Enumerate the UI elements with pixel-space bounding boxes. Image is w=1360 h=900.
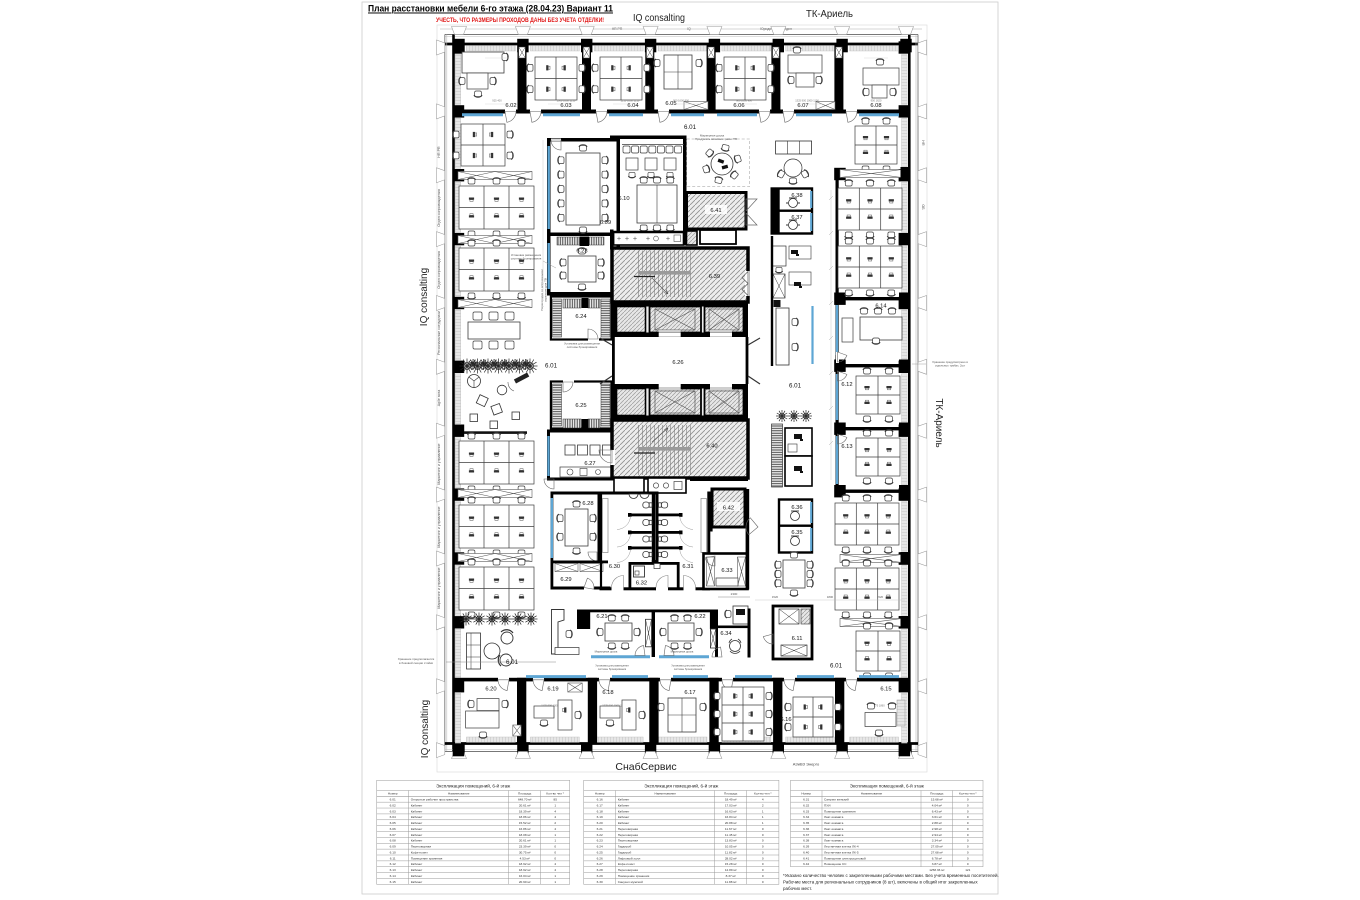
svg-text:6.24: 6.24 — [597, 845, 603, 849]
svg-text:1: 1 — [554, 833, 556, 837]
svg-text:0: 0 — [967, 862, 969, 866]
svg-text:6.16: 6.16 — [780, 717, 791, 723]
svg-text:Площадь: Площадь — [930, 792, 944, 796]
svg-text:2: 2 — [554, 821, 556, 825]
svg-text:6.27: 6.27 — [597, 862, 603, 866]
svg-text:0: 0 — [967, 833, 969, 837]
svg-text:1: 1 — [762, 809, 764, 813]
svg-text:6.07: 6.07 — [390, 833, 396, 837]
svg-text:15.68 м²: 15.68 м² — [931, 798, 943, 802]
svg-text:20.61 м²: 20.61 м² — [519, 839, 531, 843]
svg-text:15.52 м²: 15.52 м² — [519, 821, 531, 825]
svg-text:Кабинет: Кабинет — [618, 821, 630, 825]
svg-text:6.27: 6.27 — [584, 461, 595, 467]
svg-text:6.39: 6.39 — [803, 845, 809, 849]
svg-text:6.10: 6.10 — [618, 196, 629, 202]
svg-text:2.94 м²: 2.94 м² — [932, 833, 942, 837]
svg-text:4.53 м²: 4.53 м² — [520, 856, 530, 860]
svg-text:Экспликация помещений, 6-й эта: Экспликация помещений, 6-й этаж — [436, 782, 511, 788]
svg-text:6.01: 6.01 — [830, 663, 843, 670]
svg-text:16.84 м²: 16.84 м² — [725, 815, 737, 819]
svg-text:ПУИ: ПУИ — [824, 803, 830, 807]
svg-text:Санузел женский: Санузел женский — [824, 798, 849, 802]
svg-text:Переговорная: Переговорная — [618, 868, 639, 872]
svg-text:648.70 м²: 648.70 м² — [518, 798, 531, 802]
svg-text:18.86 м²: 18.86 м² — [519, 815, 531, 819]
svg-text:6.23: 6.23 — [597, 839, 603, 843]
svg-text:6.19: 6.19 — [597, 815, 603, 819]
svg-text:925 400: 925 400 — [492, 99, 502, 103]
svg-text:Региональные сотрудники: Региональные сотрудники — [437, 311, 441, 355]
svg-text:0: 0 — [967, 809, 969, 813]
svg-text:18.08 м²: 18.08 м² — [519, 833, 531, 837]
svg-text:0: 0 — [762, 862, 764, 866]
svg-text:Лакт-комната: Лакт-комната — [824, 833, 844, 837]
svg-text:Лестничная клетка ЛК-4: Лестничная клетка ЛК-4 — [824, 845, 859, 849]
svg-text:Экспликация помещений, 6-й эта: Экспликация помещений, 6-й этаж — [850, 782, 925, 788]
svg-text:6.12: 6.12 — [841, 382, 852, 388]
svg-text:0: 0 — [762, 845, 764, 849]
svg-text:2.88 м²: 2.88 м² — [932, 821, 942, 825]
svg-text:в боковой секции стойки: в боковой секции стойки — [399, 661, 433, 665]
svg-text:6.09: 6.09 — [390, 845, 396, 849]
svg-text:0: 0 — [762, 833, 764, 837]
svg-text:Маркетинг и управление: Маркетинг и управление — [437, 506, 441, 547]
svg-text:Кол-во чел *: Кол-во чел * — [546, 792, 564, 796]
svg-text:6.19: 6.19 — [547, 687, 558, 693]
svg-text:Помещение хранения: Помещение хранения — [618, 874, 650, 878]
svg-text:4: 4 — [554, 815, 556, 819]
svg-text:6.40: 6.40 — [803, 850, 809, 854]
svg-text:0: 0 — [762, 874, 764, 878]
svg-text:системы бронирования: системы бронирования — [567, 345, 598, 349]
svg-text:Лакт-комната: Лакт-комната — [824, 827, 844, 831]
svg-text:121: 121 — [965, 868, 970, 872]
svg-text:6.13: 6.13 — [390, 868, 396, 872]
svg-text:6.14: 6.14 — [390, 874, 396, 878]
svg-text:6.21: 6.21 — [597, 827, 603, 831]
svg-text:6.26: 6.26 — [672, 360, 683, 366]
svg-text:6.04: 6.04 — [390, 815, 396, 819]
svg-text:6.15: 6.15 — [880, 687, 891, 693]
svg-text:6.18: 6.18 — [602, 690, 613, 696]
svg-text:отдельных тумбах. 2шт: отдельных тумбах. 2шт — [935, 364, 966, 368]
svg-text:3.61 м²: 3.61 м² — [932, 815, 942, 819]
svg-text:системы бронирования: системы бронирования — [511, 257, 542, 261]
svg-text:Переговорная: Переговорная — [618, 839, 639, 843]
svg-text:Кабинет: Кабинет — [411, 862, 423, 866]
svg-text:6.33: 6.33 — [803, 809, 809, 813]
svg-text:6.15: 6.15 — [390, 880, 396, 884]
svg-text:Кофе-поинт: Кофе-поинт — [411, 850, 429, 854]
svg-text:4: 4 — [554, 868, 556, 872]
svg-text:ТК-Ариель: ТК-Ариель — [806, 9, 853, 20]
svg-text:6.17: 6.17 — [597, 803, 603, 807]
svg-text:Наименование: Наименование — [448, 792, 470, 796]
svg-text:Переговорная: Переговорная — [618, 833, 639, 837]
svg-text:8.37 м²: 8.37 м² — [726, 874, 736, 878]
svg-text:2.98 м²: 2.98 м² — [932, 827, 942, 831]
svg-text:6.25: 6.25 — [597, 850, 603, 854]
svg-text:6.01: 6.01 — [506, 659, 519, 666]
svg-text:Кабинет: Кабинет — [411, 880, 423, 884]
svg-text:4: 4 — [554, 862, 556, 866]
svg-text:17.03 м²: 17.03 м² — [725, 803, 737, 807]
svg-text:ОБ: ОБ — [921, 204, 925, 210]
svg-text:Санузел мужской: Санузел мужской — [618, 880, 643, 884]
svg-text:1: 1 — [554, 874, 556, 878]
svg-text:1520: 1520 — [772, 595, 779, 599]
svg-text:Наименование: Наименование — [654, 792, 676, 796]
svg-text:Открытые рабочие пространства: Открытые рабочие пространства — [411, 798, 459, 802]
svg-text:6.20: 6.20 — [597, 821, 603, 825]
svg-text:6.30: 6.30 — [609, 564, 620, 570]
svg-text:Кабинет: Кабинет — [411, 809, 423, 813]
svg-text:Маркерная доска: Маркерная доска — [671, 650, 694, 654]
svg-text:6.21: 6.21 — [596, 614, 607, 620]
svg-text:0: 0 — [762, 839, 764, 843]
svg-text:Номер: Номер — [801, 792, 811, 796]
svg-text:экранами для ТВ: экранами для ТВ — [544, 278, 548, 302]
svg-text:1: 1 — [762, 815, 764, 819]
svg-text:Номер: Номер — [595, 792, 605, 796]
svg-text:6.22: 6.22 — [694, 614, 705, 620]
svg-text:85: 85 — [553, 798, 557, 802]
svg-text:1: 1 — [554, 839, 556, 843]
svg-text:6.10: 6.10 — [390, 850, 396, 854]
svg-text:6.35: 6.35 — [803, 821, 809, 825]
svg-text:2300: 2300 — [731, 592, 738, 596]
svg-text:Кабинет: Кабинет — [618, 798, 630, 802]
svg-text:16.04 м²: 16.04 м² — [519, 874, 531, 878]
svg-text:6.41: 6.41 — [710, 208, 721, 214]
svg-text:1: 1 — [554, 803, 556, 807]
svg-text:Agile зона: Agile зона — [437, 390, 441, 407]
svg-text:0: 0 — [967, 850, 969, 854]
svg-text:Экспликация помещений, 6-й эта: Экспликация помещений, 6-й этаж — [644, 782, 719, 788]
svg-text:6.30: 6.30 — [597, 880, 603, 884]
svg-text:11.67 м²: 11.67 м² — [725, 827, 737, 831]
svg-text:Площадь: Площадь — [724, 792, 738, 796]
svg-text:20.90 м²: 20.90 м² — [519, 880, 531, 884]
svg-text:6.42: 6.42 — [803, 862, 809, 866]
svg-text:6.05: 6.05 — [390, 821, 396, 825]
svg-text:Маркерная доска: Маркерная доска — [595, 650, 618, 654]
svg-text:20.61 м²: 20.61 м² — [519, 803, 531, 807]
svg-text:Кабинет: Кабинет — [618, 809, 630, 813]
svg-text:0: 0 — [762, 868, 764, 872]
svg-text:Лакт-комната: Лакт-комната — [824, 821, 844, 825]
svg-text:6.11: 6.11 — [390, 856, 396, 860]
svg-text:Кабинет: Кабинет — [411, 815, 423, 819]
svg-text:0: 0 — [967, 803, 969, 807]
svg-text:18.49 м²: 18.49 м² — [725, 798, 737, 802]
svg-text:6.08: 6.08 — [870, 103, 881, 109]
svg-text:6.33: 6.33 — [721, 568, 732, 574]
svg-text:20.88 м²: 20.88 м² — [725, 821, 737, 825]
svg-text:0: 0 — [762, 856, 764, 860]
svg-text:18.92 м²: 18.92 м² — [519, 862, 531, 866]
svg-text:0: 0 — [762, 880, 764, 884]
svg-text:6.03: 6.03 — [390, 809, 396, 813]
svg-text:2: 2 — [762, 803, 764, 807]
svg-text:Наименование: Наименование — [861, 792, 883, 796]
svg-text:Помещение хранения: Помещение хранения — [411, 856, 443, 860]
svg-text:6.34: 6.34 — [803, 815, 809, 819]
svg-text:6.01: 6.01 — [684, 124, 697, 131]
svg-text:IQ consalting: IQ consalting — [633, 13, 685, 24]
svg-text:Кабинет: Кабинет — [618, 815, 630, 819]
svg-text:6.24: 6.24 — [575, 314, 587, 320]
svg-text:6.13: 6.13 — [841, 444, 852, 450]
svg-text:Кабинет: Кабинет — [411, 833, 423, 837]
svg-text:6.29: 6.29 — [597, 874, 603, 878]
svg-text:Кабинет: Кабинет — [411, 868, 423, 872]
svg-text:6.18: 6.18 — [597, 809, 603, 813]
svg-text:0: 0 — [967, 798, 969, 802]
svg-text:0: 0 — [762, 850, 764, 854]
svg-text:Помещение СС: Помещение СС — [824, 862, 847, 866]
svg-text:Лакт-комната: Лакт-комната — [824, 839, 844, 843]
svg-text:Кабинет: Кабинет — [618, 803, 630, 807]
svg-text:Лифтовый холл: Лифтовый холл — [618, 856, 641, 860]
svg-text:УЧЕСТЬ, ЧТО РАЗМЕРЫ ПРОХОДОВ Д: УЧЕСТЬ, ЧТО РАЗМЕРЫ ПРОХОДОВ ДАНЫ БЕЗ УЧ… — [436, 18, 604, 24]
svg-text:Продумать возможн. разм. ТВ: Продумать возможн. разм. ТВ — [695, 137, 737, 141]
svg-text:1: 1 — [554, 880, 556, 884]
svg-text:6.31: 6.31 — [682, 564, 693, 570]
svg-text:Отдел сопровождения: Отдел сопровождения — [437, 251, 441, 288]
svg-text:6.38: 6.38 — [803, 839, 809, 843]
svg-text:Кабинет: Кабинет — [411, 839, 423, 843]
svg-text:6.02: 6.02 — [390, 803, 396, 807]
svg-text:6.41: 6.41 — [803, 856, 809, 860]
svg-text:СнабСервис: СнабСервис — [615, 761, 676, 773]
svg-text:*Указано количество человек с: *Указано количество человек с закрепленн… — [783, 872, 999, 878]
svg-text:0: 0 — [554, 845, 556, 849]
svg-text:6.17: 6.17 — [684, 690, 695, 696]
svg-text:6.36: 6.36 — [791, 505, 802, 511]
svg-text:6.11: 6.11 — [792, 636, 803, 642]
svg-text:30.75 м²: 30.75 м² — [519, 850, 531, 854]
svg-text:6.20: 6.20 — [485, 687, 496, 693]
svg-text:Помещение электрощитовой: Помещение электрощитовой — [824, 856, 866, 860]
svg-text:900 1620: 900 1620 — [871, 99, 882, 103]
svg-text:6.12: 6.12 — [390, 862, 396, 866]
svg-text:системы бронирования: системы бронирования — [598, 667, 627, 671]
svg-text:Помещение хранения: Помещение хранения — [824, 809, 856, 813]
svg-text:6.09: 6.09 — [600, 220, 611, 226]
svg-text:HR PR: HR PR — [437, 146, 441, 158]
svg-text:1: 1 — [762, 821, 764, 825]
svg-text:Кабинет: Кабинет — [411, 803, 423, 807]
svg-text:18.39 м²: 18.39 м² — [519, 809, 531, 813]
svg-text:6.40: 6.40 — [706, 444, 717, 450]
svg-text:0: 0 — [967, 839, 969, 843]
svg-text:Кофе-поинт: Кофе-поинт — [618, 862, 636, 866]
svg-text:6.29: 6.29 — [560, 577, 571, 583]
svg-text:6.78 м²: 6.78 м² — [932, 856, 942, 860]
svg-text:6.36: 6.36 — [803, 827, 809, 831]
svg-text:27.09 м²: 27.09 м² — [931, 845, 943, 849]
svg-text:0: 0 — [554, 856, 556, 860]
svg-text:Кабинет: Кабинет — [411, 874, 423, 878]
svg-text:13.83 м²: 13.83 м² — [725, 839, 737, 843]
svg-text:Рабочие места для региональных: Рабочие места для региональных сотрудник… — [783, 879, 978, 885]
svg-text:6.14: 6.14 — [875, 304, 887, 310]
svg-text:6.34: 6.34 — [720, 631, 732, 637]
svg-text:4.04 м²: 4.04 м² — [932, 803, 942, 807]
svg-text:Площадь: Площадь — [518, 792, 532, 796]
svg-text:6.01: 6.01 — [390, 798, 396, 802]
svg-text:10.05 м²: 10.05 м² — [725, 845, 737, 849]
svg-text:11.45 м²: 11.45 м² — [725, 833, 737, 837]
svg-text:3.34 м²: 3.34 м² — [932, 839, 942, 843]
svg-text:0: 0 — [967, 815, 969, 819]
svg-text:Лакт-комната: Лакт-комната — [824, 815, 844, 819]
svg-text:6.35: 6.35 — [791, 530, 802, 536]
svg-text:4: 4 — [554, 827, 556, 831]
svg-text:Переговорная: Переговорная — [411, 845, 432, 849]
svg-text:6.01: 6.01 — [789, 383, 802, 390]
svg-text:6.39: 6.39 — [709, 274, 720, 280]
svg-text:рабочих мест.: рабочих мест. — [783, 886, 812, 891]
svg-text:План расстановки мебели 6-го э: План расстановки мебели 6-го этажа (28.0… — [368, 4, 614, 15]
svg-text:Переговорная: Переговорная — [618, 827, 639, 831]
svg-text:16.63 м²: 16.63 м² — [725, 809, 737, 813]
svg-text:Лестничная клетка ЛК-5: Лестничная клетка ЛК-5 — [824, 850, 859, 854]
svg-text:6.37: 6.37 — [803, 833, 809, 837]
svg-text:28.02 м²: 28.02 м² — [725, 856, 737, 860]
svg-text:Кол-во чел *: Кол-во чел * — [754, 792, 772, 796]
svg-text:6.28: 6.28 — [597, 868, 603, 872]
svg-text:1800: 1800 — [827, 595, 834, 599]
svg-text:IQ consalting: IQ consalting — [419, 268, 430, 326]
svg-text:4: 4 — [554, 809, 556, 813]
svg-text:6.06: 6.06 — [390, 827, 396, 831]
svg-text:6.25: 6.25 — [575, 403, 586, 409]
svg-text:системы бронирования: системы бронирования — [674, 667, 703, 671]
svg-text:6.28: 6.28 — [582, 501, 593, 507]
svg-text:6.08: 6.08 — [390, 839, 396, 843]
svg-text:6.43 м²: 6.43 м² — [932, 809, 942, 813]
svg-text:HR: HR — [921, 140, 925, 146]
svg-text:6.22: 6.22 — [597, 833, 603, 837]
svg-text:11.88 м²: 11.88 м² — [725, 880, 737, 884]
svg-text:Отдел сопровождения: Отдел сопровождения — [437, 189, 441, 226]
svg-text:6.32: 6.32 — [803, 803, 809, 807]
svg-text:3.87 м²: 3.87 м² — [932, 862, 942, 866]
svg-text:18.92 м²: 18.92 м² — [519, 868, 531, 872]
svg-text:АЗиВЗ Энерго: АЗиВЗ Энерго — [793, 762, 820, 767]
svg-text:6.05: 6.05 — [665, 101, 676, 107]
svg-text:12.89 м²: 12.89 м² — [725, 868, 737, 872]
svg-text:0: 0 — [554, 850, 556, 854]
svg-text:Номер: Номер — [388, 792, 398, 796]
svg-text:1258.36 м²: 1258.36 м² — [929, 868, 944, 872]
svg-text:6.42: 6.42 — [723, 506, 734, 512]
svg-text:16.86 м²: 16.86 м² — [519, 827, 531, 831]
svg-text:6.16: 6.16 — [597, 798, 603, 802]
svg-text:Кабинет: Кабинет — [411, 821, 423, 825]
svg-text:1520: 1520 — [877, 595, 884, 599]
svg-text:Гардероб: Гардероб — [618, 845, 632, 849]
svg-text:0: 0 — [967, 845, 969, 849]
svg-text:Маркетинг и управление: Маркетинг и управление — [437, 567, 441, 608]
svg-text:6.26: 6.26 — [597, 856, 603, 860]
svg-text:Гардероб: Гардероб — [618, 850, 632, 854]
svg-text:6.31: 6.31 — [803, 798, 809, 802]
svg-text:Кол-во чел *: Кол-во чел * — [959, 792, 977, 796]
svg-text:4: 4 — [762, 798, 764, 802]
svg-text:6.23: 6.23 — [576, 249, 587, 255]
svg-text:0: 0 — [762, 827, 764, 831]
svg-text:Кабинет: Кабинет — [411, 827, 423, 831]
svg-text:11.82 м²: 11.82 м² — [725, 850, 737, 854]
svg-text:6.01: 6.01 — [545, 363, 558, 370]
svg-text:0: 0 — [967, 821, 969, 825]
svg-text:6.32: 6.32 — [636, 581, 647, 587]
svg-text:ТК-Ариель: ТК-Ариель — [933, 398, 944, 447]
svg-text:IQ consalting: IQ consalting — [420, 700, 431, 758]
svg-text:15.28 м²: 15.28 м² — [725, 862, 737, 866]
svg-text:23.39 м²: 23.39 м² — [519, 845, 531, 849]
svg-text:0: 0 — [967, 827, 969, 831]
svg-text:0: 0 — [967, 856, 969, 860]
svg-text:27.68 м²: 27.68 м² — [931, 850, 943, 854]
svg-text:Маркетинг и управление: Маркетинг и управление — [437, 443, 441, 484]
